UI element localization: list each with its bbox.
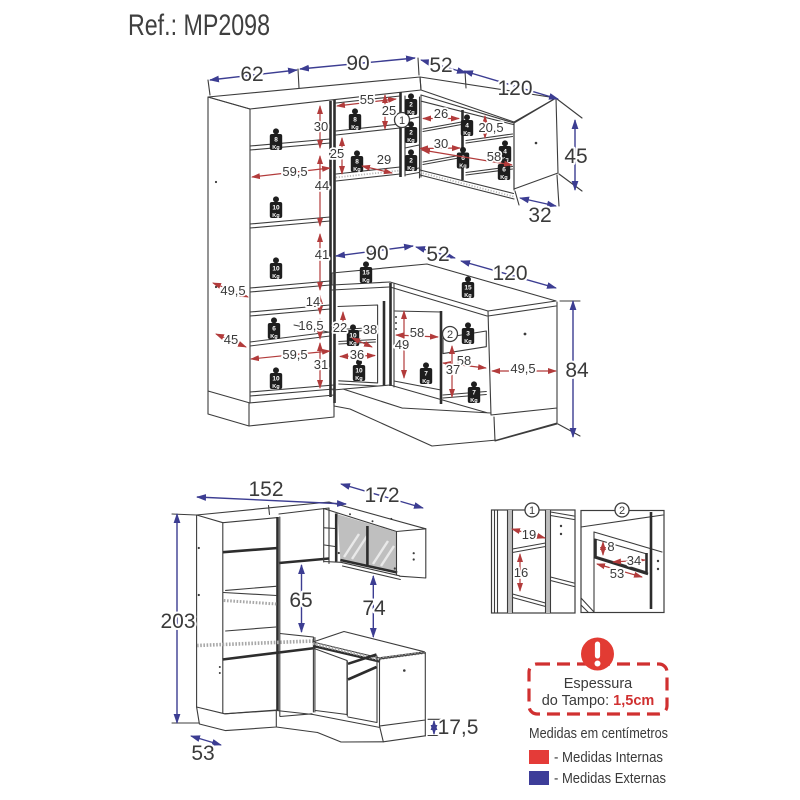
svg-text:20,5: 20,5	[478, 120, 503, 135]
svg-text:Kg: Kg	[351, 125, 359, 131]
svg-text:Kg: Kg	[272, 384, 280, 390]
svg-text:34: 34	[627, 553, 641, 568]
svg-text:Kg: Kg	[349, 341, 357, 347]
svg-text:Kg: Kg	[270, 334, 278, 340]
svg-text:16,5: 16,5	[298, 318, 323, 333]
svg-text:120: 120	[492, 262, 527, 285]
svg-text:Kg: Kg	[407, 166, 415, 172]
svg-text:10: 10	[355, 368, 363, 375]
svg-text:Kg: Kg	[272, 145, 280, 151]
svg-text:7: 7	[424, 371, 428, 378]
svg-text:Kg: Kg	[353, 167, 361, 173]
svg-text:55: 55	[360, 92, 374, 107]
svg-text:10: 10	[272, 205, 280, 212]
svg-text:49: 49	[395, 337, 409, 352]
svg-text:10: 10	[272, 376, 280, 383]
svg-text:29: 29	[377, 152, 391, 167]
svg-text:22: 22	[333, 320, 347, 335]
svg-text:172: 172	[364, 484, 399, 507]
svg-text:Kg: Kg	[407, 110, 415, 116]
svg-text:38: 38	[363, 322, 377, 337]
svg-text:1: 1	[399, 115, 405, 127]
svg-text:84: 84	[565, 359, 589, 382]
svg-text:30: 30	[314, 119, 328, 134]
svg-text:59,5: 59,5	[282, 164, 307, 179]
svg-text:Medidas em centímetros: Medidas em centímetros	[529, 725, 668, 742]
svg-text:4: 4	[503, 149, 507, 156]
svg-text:58: 58	[410, 325, 424, 340]
svg-text:4: 4	[465, 123, 469, 130]
svg-text:15: 15	[464, 285, 472, 292]
svg-text:- Medidas Internas: - Medidas Internas	[554, 749, 663, 766]
svg-text:30: 30	[434, 136, 448, 151]
svg-text:45: 45	[224, 332, 238, 347]
svg-text:52: 52	[426, 243, 449, 266]
svg-text:2: 2	[409, 158, 413, 165]
svg-text:Kg: Kg	[272, 213, 280, 219]
svg-text:14: 14	[306, 294, 320, 309]
svg-text:15: 15	[362, 270, 370, 277]
svg-text:Kg: Kg	[362, 278, 370, 284]
svg-text:Kg: Kg	[272, 274, 280, 280]
svg-text:152: 152	[248, 478, 283, 501]
svg-text:8: 8	[274, 137, 278, 144]
svg-text:8: 8	[607, 539, 614, 554]
svg-text:44: 44	[315, 178, 329, 193]
svg-text:26: 26	[434, 106, 448, 121]
svg-text:6: 6	[502, 167, 506, 174]
svg-text:8: 8	[355, 159, 359, 166]
svg-text:45: 45	[564, 145, 587, 168]
svg-text:58: 58	[487, 149, 501, 164]
svg-text:- Medidas Externas: - Medidas Externas	[554, 770, 666, 787]
svg-text:Ref.: MP2098: Ref.: MP2098	[128, 9, 270, 42]
svg-text:17,5: 17,5	[438, 716, 479, 739]
svg-text:2: 2	[447, 329, 453, 341]
svg-text:Kg: Kg	[422, 379, 430, 385]
svg-text:53: 53	[191, 742, 214, 765]
svg-text:52: 52	[429, 54, 452, 77]
svg-text:Kg: Kg	[500, 175, 508, 181]
svg-text:7: 7	[472, 390, 476, 397]
svg-text:62: 62	[240, 63, 263, 86]
svg-text:49,5: 49,5	[220, 283, 245, 298]
svg-text:25: 25	[330, 146, 344, 161]
svg-text:32: 32	[528, 204, 551, 227]
svg-text:74: 74	[362, 597, 386, 620]
svg-text:16: 16	[514, 565, 528, 580]
svg-text:do Tampo: 1,5cm: do Tampo: 1,5cm	[542, 693, 655, 709]
svg-text:3: 3	[466, 331, 470, 338]
svg-text:36: 36	[350, 347, 364, 362]
svg-text:31: 31	[314, 357, 328, 372]
svg-text:65: 65	[289, 589, 312, 612]
svg-text:2: 2	[409, 102, 413, 109]
svg-text:41: 41	[315, 247, 329, 262]
svg-text:90: 90	[365, 242, 388, 265]
svg-text:8: 8	[353, 117, 357, 124]
svg-text:Kg: Kg	[470, 398, 478, 404]
svg-text:Espessura: Espessura	[564, 676, 633, 692]
svg-text:1: 1	[529, 505, 535, 517]
svg-text:10: 10	[272, 266, 280, 273]
svg-text:Kg: Kg	[355, 376, 363, 382]
svg-text:25: 25	[382, 103, 396, 118]
svg-text:203: 203	[160, 610, 195, 633]
svg-text:2: 2	[619, 505, 625, 517]
svg-text:19: 19	[522, 527, 536, 542]
svg-text:Kg: Kg	[459, 163, 467, 169]
svg-text:2: 2	[409, 130, 413, 137]
svg-text:120: 120	[497, 77, 532, 100]
svg-text:Kg: Kg	[407, 138, 415, 144]
svg-text:90: 90	[346, 52, 369, 75]
svg-text:37: 37	[446, 362, 460, 377]
svg-text:53: 53	[610, 566, 624, 581]
svg-text:Kg: Kg	[464, 339, 472, 345]
svg-text:49,5: 49,5	[510, 361, 535, 376]
svg-text:6: 6	[272, 326, 276, 333]
svg-text:59,5: 59,5	[282, 347, 307, 362]
svg-text:Kg: Kg	[464, 293, 472, 299]
svg-text:Kg: Kg	[463, 131, 471, 137]
